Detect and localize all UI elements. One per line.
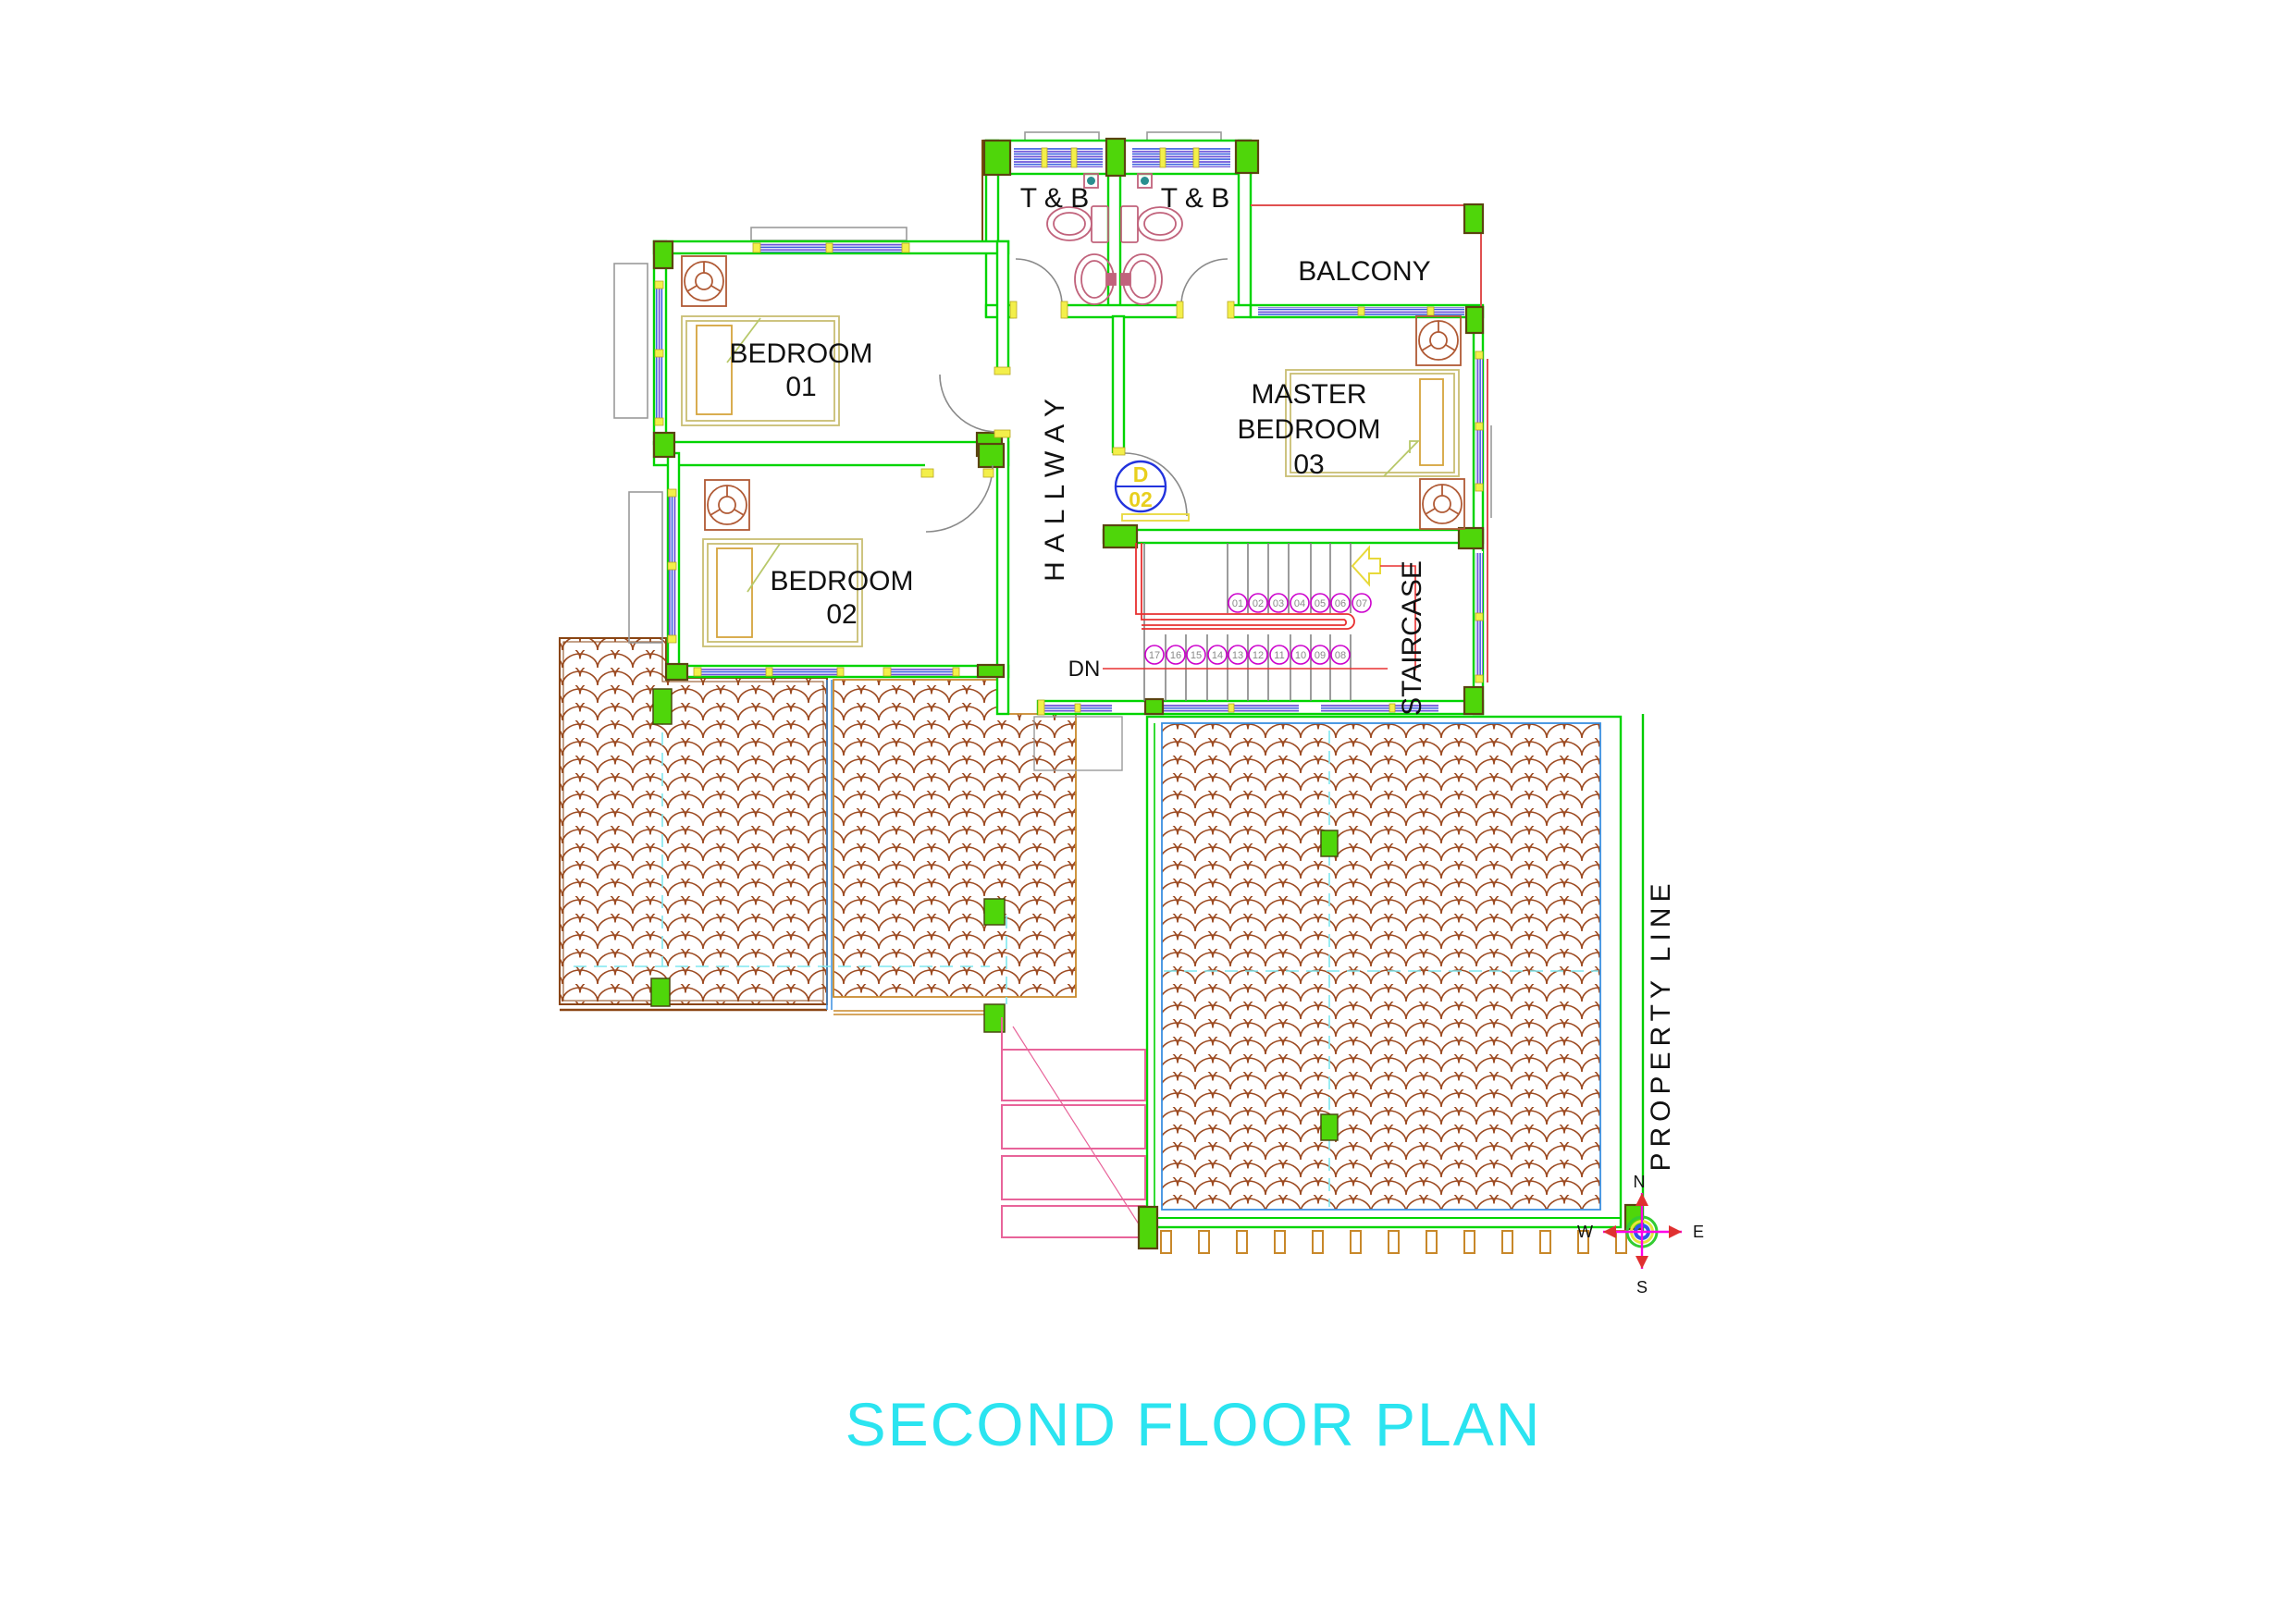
window-tb-left xyxy=(1014,148,1103,167)
svg-text:09: 09 xyxy=(1315,650,1326,661)
room-label-bedroom1-line2: 01 xyxy=(785,372,816,402)
stair-handrail xyxy=(1136,543,1354,629)
door-arc-tb-left xyxy=(1016,259,1062,305)
compass-south-label: S xyxy=(1636,1278,1648,1297)
door-tag-letter: D xyxy=(1133,462,1149,486)
window-tb-right xyxy=(1132,148,1230,167)
roof-areas xyxy=(560,638,1626,1253)
svg-text:16: 16 xyxy=(1170,650,1181,661)
roof-left-section xyxy=(560,638,827,1004)
door-tag-number: 02 xyxy=(1129,487,1153,511)
svg-text:05: 05 xyxy=(1315,598,1326,609)
stair-direction-arrow-icon xyxy=(1352,547,1380,584)
staircase-plan: 01 02 03 04 05 06 07 17 16 15 14 13 12 1… xyxy=(1068,543,1415,701)
door-leaf-master xyxy=(1122,514,1189,521)
svg-text:13: 13 xyxy=(1232,650,1243,661)
ceiling-fan-icon xyxy=(1420,479,1464,529)
room-label-master-line3: 03 xyxy=(1293,449,1324,480)
doors: D 02 xyxy=(921,259,1234,532)
svg-text:10: 10 xyxy=(1295,650,1306,661)
svg-text:01: 01 xyxy=(1232,598,1243,609)
svg-text:15: 15 xyxy=(1191,650,1202,661)
room-label-bedroom2-line1: BEDROOM xyxy=(770,566,913,596)
drawing-title: SECOND FLOOR PLAN xyxy=(846,1390,1542,1458)
stair-dn-label: DN xyxy=(1068,657,1101,682)
room-label-tb-left: T & B xyxy=(1020,183,1089,214)
svg-text:03: 03 xyxy=(1273,598,1284,609)
svg-text:11: 11 xyxy=(1274,650,1284,661)
room-label-bedroom2-line2: 02 xyxy=(826,599,857,630)
svg-text:08: 08 xyxy=(1335,650,1346,661)
compass-north-label: N xyxy=(1634,1173,1646,1191)
door-arc-bedroom1 xyxy=(940,375,997,432)
compass-east-label: E xyxy=(1693,1223,1704,1241)
svg-text:02: 02 xyxy=(1253,598,1264,609)
door-arc-tb-right xyxy=(1181,259,1228,305)
svg-text:17: 17 xyxy=(1149,650,1160,661)
stair-step-numbers-top: 01 02 03 04 05 06 07 xyxy=(1228,594,1371,612)
svg-text:12: 12 xyxy=(1253,650,1264,661)
room-label-balcony: BALCONY xyxy=(1298,256,1430,287)
room-label-master-line1: MASTER xyxy=(1251,379,1366,410)
floor-plan-drawing: D 02 xyxy=(0,0,2296,1623)
shower-drain-icon xyxy=(1138,174,1152,188)
room-label-hallway: HALLWAY xyxy=(1040,389,1070,582)
perimeter-brown-lines xyxy=(654,141,1254,678)
room-label-tb-right: T & B xyxy=(1161,183,1229,214)
floor-plan-page: D 02 xyxy=(0,0,2296,1623)
svg-text:06: 06 xyxy=(1335,598,1346,609)
property-line-label: PROPERTY LINE xyxy=(1646,879,1676,1172)
ceiling-fan-icon xyxy=(1416,316,1461,365)
svg-text:07: 07 xyxy=(1356,598,1367,609)
door-tag: D 02 xyxy=(1116,461,1166,511)
bed-icon xyxy=(682,316,839,425)
door-arc-bedroom2 xyxy=(926,465,993,532)
room-label-master-line2: BEDROOM xyxy=(1237,414,1380,445)
svg-text:04: 04 xyxy=(1294,598,1305,609)
porch-steps xyxy=(1002,1017,1145,1237)
room-label-bedroom1-line1: BEDROOM xyxy=(729,338,872,369)
window-bedroom2-bottom-2 xyxy=(891,668,953,676)
roof-main-tiles xyxy=(1162,723,1600,1210)
roof-middle-section xyxy=(833,680,1076,997)
room-label-staircase: STAIRCASE xyxy=(1397,560,1427,716)
ceiling-fan-icon xyxy=(705,480,749,530)
ceiling-fan-icon xyxy=(682,256,726,306)
rafter-tails xyxy=(1161,1231,1626,1253)
compass-west-label: W xyxy=(1577,1223,1593,1241)
svg-text:14: 14 xyxy=(1212,650,1223,661)
sink-icon xyxy=(1121,254,1162,304)
